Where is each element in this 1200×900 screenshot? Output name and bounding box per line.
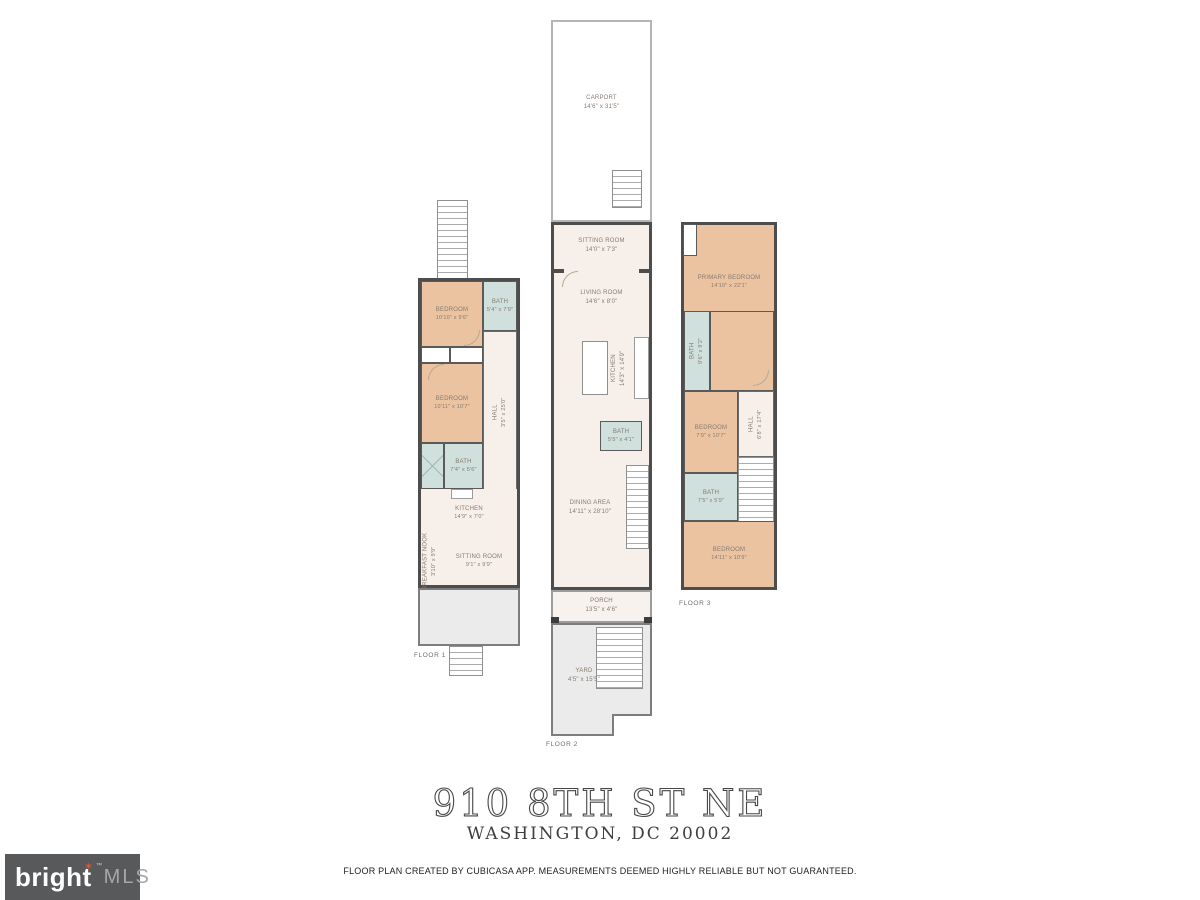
floor3-bedroom-1: BEDROOM 7'9" x 10'7" [684,391,738,473]
room-name: KITCHEN [610,354,618,382]
stove-icon [451,489,473,499]
room-label: PRIMARY BEDROOM 14'10" x 22'1" [684,253,774,311]
room-name: SITTING ROOM [578,237,624,245]
floor2-plan: SITTING ROOM 14'0" x 7'3" LIVING ROOM 14… [551,222,652,590]
room-dims: 14'3" x 14'9" [619,350,627,386]
room-label: CARPORT 14'6" x 31'5" [553,94,650,111]
room-name: BATH [455,458,471,466]
appliance-run [634,337,649,399]
room-name: HALL [748,416,756,432]
room-label: HALL 3'5" x 25'0" [484,332,516,492]
room-name: BEDROOM [436,306,468,314]
door-arc [753,370,769,386]
room-label: KITCHEN 14'3" x 14'9" [610,337,627,399]
floor1-plan: BEDROOM 10'10" x 9'6" BATH 5'4" x 7'9" B… [418,278,520,588]
floor1-shower [421,443,444,489]
floor2-carport: CARPORT 14'6" x 31'5" [551,20,652,222]
room-dims: 14'9" x 7'0" [454,514,484,521]
trademark-symbol: ™ [96,863,103,869]
room-name: YARD [575,667,592,675]
floor3-stairs [738,457,774,523]
floor1-kitchen: KITCHEN 14'9" x 7'0" [421,489,517,537]
wall-stub [639,269,649,273]
room-label: SITTING ROOM 14'0" x 7'3" [554,237,649,254]
floor3-primary-bedroom: PRIMARY BEDROOM 14'10" x 22'1" [684,225,774,311]
floor1-sitting-area: BREAKFAST NOOK 3'10" x 9'9" SITTING ROOM… [421,537,517,585]
room-label: BEDROOM 14'11" x 10'9" [684,522,774,587]
floor2-porch: PORCH 13'5" x 4'6" [551,590,652,623]
door-arc [464,330,480,346]
wall-stub [554,269,564,273]
room-dims: 10'11" x 10'7" [434,404,470,411]
room-dims: 6'8" x 17'4" [757,409,764,439]
room-label: LIVING ROOM 14'6" x 8'0" [554,289,649,306]
floor1-bath-1: BATH 5'4" x 7'9" [483,281,517,331]
floor1-rear-deck [418,588,520,646]
room-name: PORCH [590,597,613,605]
room-name: BATH [703,489,719,497]
star-icon: ✶ [84,862,94,873]
logo-wordmark: bright [15,862,92,892]
floor2-yard: YARD 4'5" x 15'5" [551,623,652,736]
room-dims: 4'5" x 15'5" [568,676,600,684]
room-dims: 3'10" x 9'9" [431,546,438,576]
floor1-bedroom-2: BEDROOM 10'11" x 10'7" [421,363,483,443]
floor1-bath-2: BATH 7'4" x 5'6" [444,443,483,489]
floor3-closet-area [710,311,774,391]
room-dims: 9'1" x 9'9" [466,562,492,569]
room-label: DINING AREA 14'11" x 28'10" [554,499,626,516]
floor3-entry-notch [683,224,697,256]
room-dims: 14'11" x 28'10" [569,508,611,516]
room-dims: 14'10" x 22'1" [711,283,747,290]
yard-cutout [612,714,652,736]
room-name: KITCHEN [455,505,483,513]
room-dims: 14'0" x 7'3" [586,246,618,254]
room-label: BATH 7'5" x 5'9" [685,474,737,520]
logo-brand-text: bright ✶ ™ [15,864,92,890]
door-arc [428,364,444,380]
floor3-plan: PRIMARY BEDROOM 14'10" x 22'1" BATH 9'6"… [681,222,777,590]
floor1-rear-stairs [449,646,483,676]
floor3-bedroom-2: BEDROOM 14'11" x 10'9" [684,521,774,587]
room-dims: 3'5" x 25'0" [501,397,508,427]
floor3-primary-bath: BATH 9'6" x 9'2" [684,311,710,391]
room-name: BREAKFAST NOOK [422,532,430,589]
floor1-hall: HALL 3'5" x 25'0" [483,331,517,493]
floor2-label: FLOOR 2 [522,741,602,748]
room-dims: 14'6" x 31'5" [584,103,620,111]
room-label: BATH 5'4" x 7'9" [484,282,516,330]
page-subtitle: WASHINGTON, DC 20002 [0,824,1200,844]
room-name: CARPORT [586,94,617,102]
room-label: HALL 6'8" x 17'4" [739,392,773,456]
floor1-closet-a [421,347,450,363]
floor-plan-sheet: BEDROOM 10'10" x 9'6" BATH 5'4" x 7'9" B… [0,0,1200,900]
bright-mls-logo: bright ✶ ™ MLS [5,854,140,900]
disclaimer-text: FLOOR PLAN CREATED BY CUBICASA APP. MEAS… [0,866,1200,876]
room-label: YARD 4'5" x 15'5" [555,667,613,684]
room-dims: 7'4" x 5'6" [450,467,476,474]
carport-stairs [612,170,642,208]
floor3-label: FLOOR 3 [655,600,735,607]
room-name: BEDROOM [713,546,745,554]
floor3-bath-2: BATH 7'5" x 5'9" [684,473,738,521]
page-title: 910 8TH ST NE [0,782,1200,825]
room-name: SITTING ROOM [456,553,502,561]
floor1-bedroom-1: BEDROOM 10'10" x 9'6" [421,281,483,347]
floor1-label: FLOOR 1 [398,652,462,659]
room-dims: 9'6" x 9'2" [698,338,705,364]
floor1-entry-stairs [437,200,468,280]
room-label: SITTING ROOM 9'1" x 9'9" [441,537,517,585]
room-label: BATH 9'6" x 9'2" [685,312,709,390]
room-name: PRIMARY BEDROOM [698,274,761,282]
room-name: DINING AREA [570,499,611,507]
room-name: BATH [689,343,697,359]
room-dims: 7'9" x 10'7" [696,433,726,440]
room-dims: 10'10" x 9'6" [436,315,469,322]
floor1-closet-b [450,347,483,363]
floor2-stairs [626,465,649,549]
room-dims: 14'6" x 8'0" [586,298,618,306]
room-label: BEDROOM 7'9" x 10'7" [685,392,737,472]
room-label: BATH 7'4" x 5'6" [445,444,482,488]
door-arc [562,271,578,287]
floor2-bath: BATH 5'5" x 4'1" [600,421,642,451]
room-name: HALL [492,404,500,420]
room-label: BREAKFAST NOOK 3'10" x 9'9" [421,537,439,585]
floor3-hall: HALL 6'8" x 17'4" [738,391,774,457]
room-dims: 5'5" x 4'1" [608,437,634,444]
room-dims: 13'5" x 4'6" [586,606,618,614]
room-dims: 5'4" x 7'9" [487,307,513,314]
room-dims: 14'11" x 10'9" [711,555,747,562]
logo-suffix-text: MLS [104,867,151,887]
room-name: BATH [492,298,508,306]
room-name: LIVING ROOM [580,289,622,297]
room-dims: 7'5" x 5'9" [698,498,724,505]
room-name: BATH [613,428,629,436]
room-name: BEDROOM [436,395,468,403]
room-name: BEDROOM [695,424,727,432]
room-label: BATH 5'5" x 4'1" [601,422,641,450]
kitchen-island [582,341,608,395]
room-label: PORCH 13'5" x 4'6" [553,597,650,614]
